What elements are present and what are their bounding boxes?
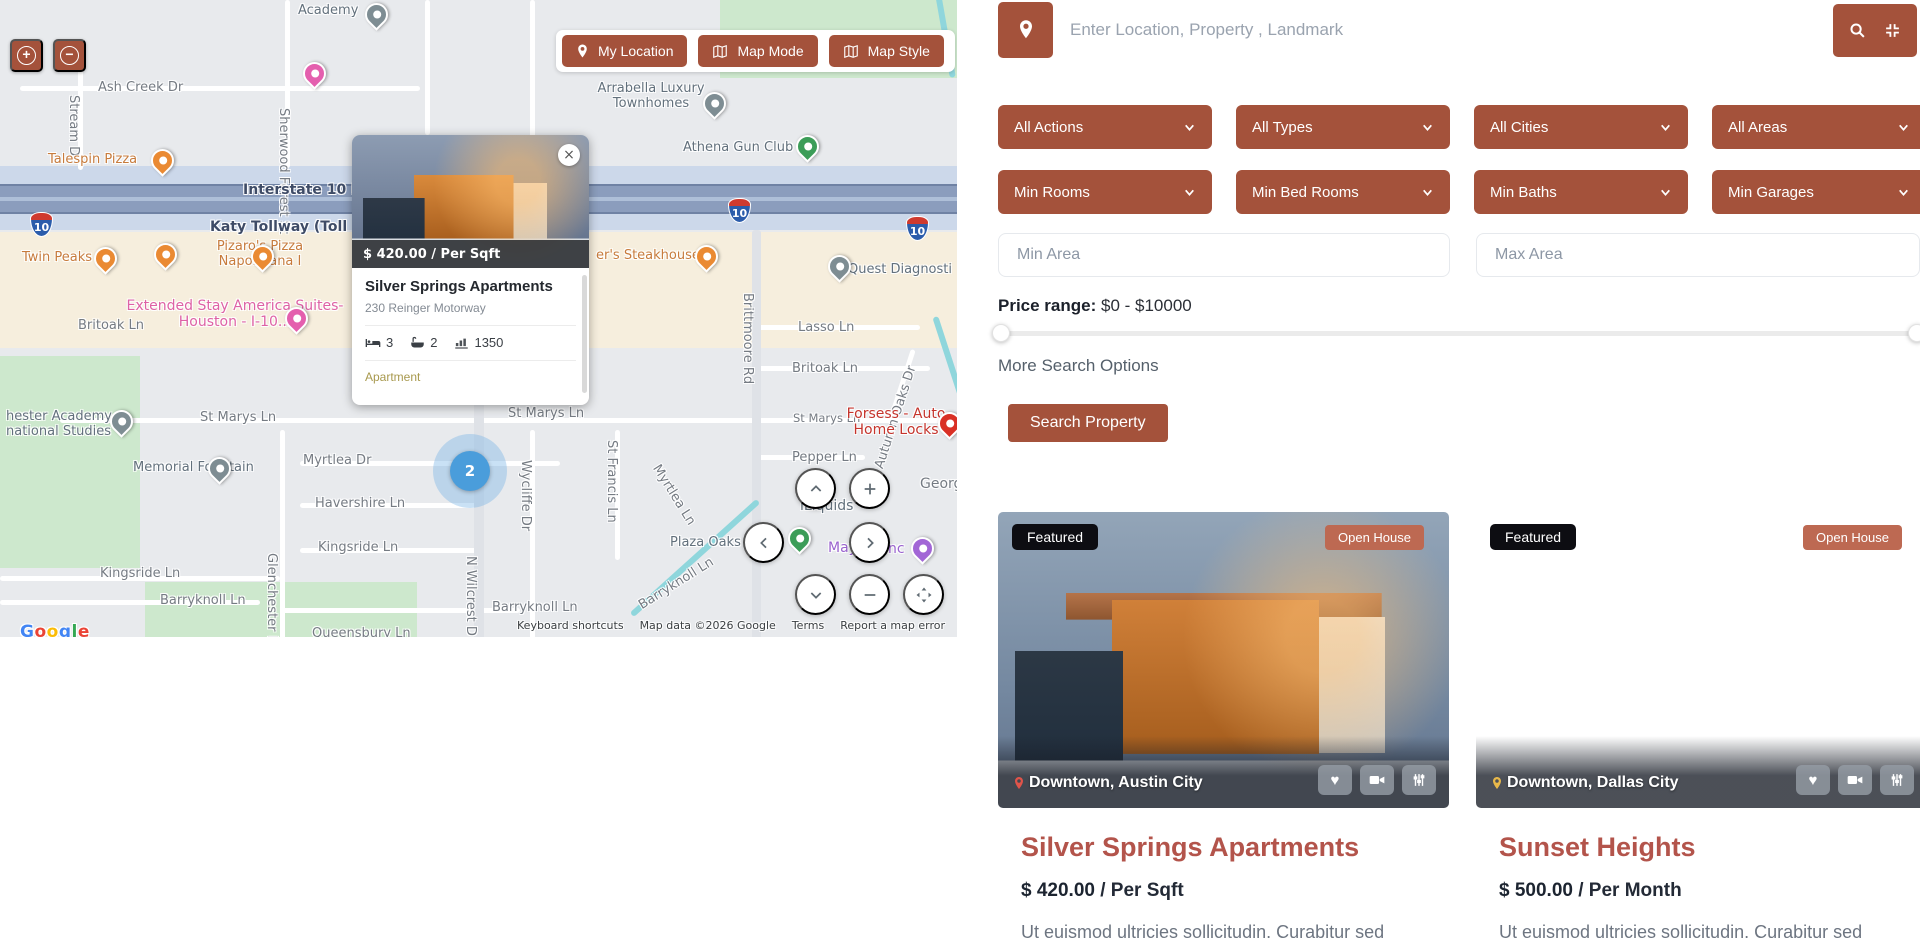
map-style-label: Map Style <box>868 43 930 59</box>
report-error-link[interactable]: Report a map error <box>840 619 945 632</box>
featured-badge: Featured <box>1012 524 1098 550</box>
popup-property-photo[interactable]: $ 420.00 / Per Sqft <box>352 135 589 268</box>
listing-description: Ut euismod ultricies sollicitudin. Curab… <box>1021 919 1426 946</box>
dropdown-label: All Actions <box>1014 119 1083 136</box>
search-actions-box <box>1833 4 1917 57</box>
chevron-down-icon <box>808 587 824 603</box>
map-road <box>752 230 761 637</box>
map-label: Twin Peaks <box>22 250 92 265</box>
map-label: Kingsride Ln <box>100 566 180 581</box>
area-feature: 1350 <box>454 335 503 350</box>
price-range-line: Price range: $0 - $10000 <box>998 296 1192 316</box>
dropdown-all-areas[interactable]: All Areas <box>1712 105 1920 149</box>
beds-feature: 3 <box>365 335 393 350</box>
chevron-down-icon <box>1183 186 1196 199</box>
listing-title[interactable]: Sunset Heights <box>1499 832 1920 863</box>
location-search-input[interactable] <box>1070 12 1710 48</box>
filters-button[interactable] <box>1880 765 1914 795</box>
slider-handle-min[interactable] <box>992 324 1010 342</box>
plus-icon <box>862 481 878 497</box>
map-label: Queensbury Ln <box>312 626 411 637</box>
chevron-down-icon <box>1897 121 1910 134</box>
map[interactable]: Academy Ash Creek Dr Stream Dr Sherwood … <box>0 0 957 637</box>
map-label: Myrtlea Dr <box>303 453 371 468</box>
open-house-badge: Open House <box>1803 525 1902 550</box>
map-marker-gun-club[interactable] <box>791 130 824 163</box>
popup-address: 230 Reinger Motorway <box>365 301 576 315</box>
listing-card: Featured Open House Downtown, Austin Cit… <box>998 512 1449 946</box>
logo-letter: o <box>34 622 46 637</box>
chevron-down-icon <box>1659 121 1672 134</box>
chevron-down-icon <box>1421 186 1434 199</box>
logo-letter: g <box>59 622 72 637</box>
dropdown-min-bed-rooms[interactable]: Min Bed Rooms <box>1236 170 1450 214</box>
location-pin-icon <box>1017 19 1035 41</box>
map-park-area <box>0 356 140 568</box>
cluster-marker[interactable]: 2 <box>450 451 490 491</box>
slider-handle-max[interactable] <box>1908 324 1920 342</box>
map-label: N Wilcrest D <box>463 556 478 636</box>
map-label: Pepper Ln <box>792 450 857 465</box>
map-zoom-in-button[interactable]: + <box>10 39 43 72</box>
map-label: Athena Gun Club <box>683 140 793 155</box>
dropdown-label: All Cities <box>1490 119 1548 136</box>
map-data-label: Map data ©2026 Google <box>640 619 776 632</box>
dropdown-label: Min Bed Rooms <box>1252 184 1359 201</box>
chevron-down-icon <box>1897 186 1910 199</box>
map-property-popup: $ 420.00 / Per Sqft × Silver Springs Apa… <box>352 135 589 405</box>
map-label: Havershire Ln <box>315 496 405 511</box>
popup-category[interactable]: Apartment <box>365 370 576 384</box>
listing-location: Downtown, Dallas City <box>1491 774 1679 792</box>
dropdown-min-garages[interactable]: Min Garages <box>1712 170 1920 214</box>
map-label: Talespin Pizza <box>48 152 137 167</box>
map-icon <box>843 44 859 59</box>
dropdown-all-types[interactable]: All Types <box>1236 105 1450 149</box>
compress-icon[interactable] <box>1884 22 1901 39</box>
map-label: Britoak Ln <box>792 361 858 376</box>
map-label: er's Steakhouse <box>596 248 700 263</box>
map-marker-fountain[interactable] <box>203 452 236 485</box>
video-button[interactable] <box>1360 765 1394 795</box>
map-road <box>280 608 520 613</box>
dropdown-label: All Types <box>1252 119 1313 136</box>
map-label: Interstate 10 Fr <box>243 182 367 198</box>
plus-icon: + <box>17 46 36 65</box>
listing-price: $ 420.00 / Per Sqft <box>1021 880 1449 902</box>
logo-letter: e <box>78 622 90 637</box>
search-property-button[interactable]: Search Property <box>1008 404 1168 442</box>
map-label: Britoak Ln <box>78 318 144 333</box>
listing-location: Downtown, Austin City <box>1013 774 1203 792</box>
price-range-slider[interactable] <box>998 331 1918 336</box>
zoom-in-circle-button[interactable] <box>849 468 890 509</box>
chevron-down-icon <box>1421 121 1434 134</box>
map-label: Extended Stay America Suites- Houston - … <box>125 298 345 330</box>
more-search-options-link[interactable]: More Search Options <box>998 356 1159 376</box>
pan-mode-button[interactable] <box>903 574 944 615</box>
map-road <box>425 0 430 135</box>
map-label: St Marys Ln <box>200 410 276 425</box>
bed-icon <box>365 337 381 349</box>
dropdown-min-baths[interactable]: Min Baths <box>1474 170 1688 214</box>
dropdown-all-cities[interactable]: All Cities <box>1474 105 1688 149</box>
video-button[interactable] <box>1838 765 1872 795</box>
map-label: Kingsride Ln <box>318 540 398 555</box>
price-range-value: $0 - $10000 <box>1101 296 1192 315</box>
min-area-input[interactable] <box>998 233 1450 277</box>
minus-icon: − <box>60 46 79 65</box>
map-label: Sherwood Forest St <box>276 108 291 234</box>
favorite-button[interactable]: ♥ <box>1796 765 1830 795</box>
map-label: Georg <box>920 476 957 492</box>
sliders-icon <box>1890 773 1904 787</box>
chevron-down-icon <box>1659 186 1672 199</box>
dropdown-label: Min Garages <box>1728 184 1814 201</box>
heart-icon: ♥ <box>1331 772 1340 789</box>
map-marker-academy[interactable] <box>360 0 393 31</box>
pan-down-button[interactable] <box>795 574 836 615</box>
chevron-up-icon <box>808 481 824 497</box>
chevron-right-icon <box>862 535 878 551</box>
popup-close-button[interactable]: × <box>558 144 580 166</box>
map-label: St Francis Ln <box>604 440 619 523</box>
area-chart-icon <box>454 337 469 349</box>
map-label: St Marys Ln <box>508 406 584 421</box>
price-range-label: Price range: <box>998 296 1096 315</box>
logo-letter: G <box>20 622 34 637</box>
terms-link[interactable]: Terms <box>792 619 824 632</box>
map-label: Quest Diagnosti <box>848 262 952 277</box>
minus-icon <box>862 587 878 603</box>
listing-title[interactable]: Silver Springs Apartments <box>1021 832 1449 863</box>
max-area-input[interactable] <box>1476 233 1920 277</box>
pan-right-button[interactable] <box>849 522 890 563</box>
listing-photo[interactable]: Featured Open House Downtown, Dallas Cit… <box>1476 512 1920 808</box>
filters-button[interactable] <box>1402 765 1436 795</box>
location-pin-box <box>998 2 1053 58</box>
map-mode-button[interactable]: Map Mode <box>698 35 817 67</box>
map-label: Arrabella Luxury Townhomes <box>592 82 710 112</box>
map-road <box>280 430 285 637</box>
heart-icon: ♥ <box>1809 772 1818 789</box>
map-label: nc <box>888 541 905 557</box>
map-marker-lodging[interactable] <box>298 57 331 90</box>
baths-feature: 2 <box>410 335 437 350</box>
dropdown-label: Min Baths <box>1490 184 1557 201</box>
my-location-button[interactable]: My Location <box>562 35 687 67</box>
map-label: Wycliffe Dr <box>518 460 533 531</box>
pan-left-button[interactable] <box>743 522 784 563</box>
real-estate-search-page: Academy Ash Creek Dr Stream Dr Sherwood … <box>0 0 1920 950</box>
logo-letter: o <box>47 622 59 637</box>
divider <box>365 325 576 326</box>
open-house-badge: Open House <box>1325 525 1424 550</box>
map-attribution: Keyboard shortcuts Map data ©2026 Google… <box>517 619 945 632</box>
keyboard-shortcuts-link[interactable]: Keyboard shortcuts <box>517 619 624 632</box>
dropdown-label: Min Rooms <box>1014 184 1090 201</box>
location-pin-icon <box>1491 776 1503 791</box>
listing-price: $ 500.00 / Per Month <box>1499 880 1920 902</box>
video-camera-icon <box>1847 774 1863 786</box>
map-marker-store[interactable] <box>906 532 939 565</box>
map-label: Brittmoore Rd <box>740 293 755 384</box>
listing-photo[interactable]: Featured Open House Downtown, Austin Cit… <box>998 512 1449 808</box>
map-label: Forsess - Auto Home Locks <box>842 406 950 438</box>
chevron-down-icon <box>1183 121 1196 134</box>
map-label: Barryknoll Ln <box>636 555 717 613</box>
featured-badge: Featured <box>1490 524 1576 550</box>
my-location-label: My Location <box>598 43 673 59</box>
zoom-out-circle-button[interactable] <box>849 574 890 615</box>
map-zoom-out-button[interactable]: − <box>53 39 86 72</box>
chevron-left-icon <box>756 535 772 551</box>
map-mode-label: Map Mode <box>737 43 803 59</box>
map-label: Barryknoll Ln <box>160 593 246 608</box>
popup-title[interactable]: Silver Springs Apartments <box>365 278 576 295</box>
map-controls-strip: My Location Map Mode Map Style <box>556 30 955 72</box>
map-label: Myrtlea Ln <box>649 462 698 528</box>
listing-description: Ut euismod ultricies sollicitudin. Curab… <box>1499 919 1904 946</box>
search-icon[interactable] <box>1849 22 1866 39</box>
four-arrows-icon <box>915 586 933 604</box>
location-pin-icon <box>1013 776 1025 791</box>
map-label: Barryknoll Ln <box>492 600 578 615</box>
map-label: Glenchester Dr <box>264 553 279 637</box>
google-logo[interactable]: Google <box>20 622 90 637</box>
map-label: Plaza Oaks <box>670 535 741 550</box>
map-label: Lasso Ln <box>798 320 854 335</box>
map-label: Ash Creek Dr <box>98 80 183 95</box>
dropdown-all-actions[interactable]: All Actions <box>998 105 1212 149</box>
map-label: Memorial Fountain <box>133 460 254 475</box>
video-camera-icon <box>1369 774 1385 786</box>
listing-card: Featured Open House Downtown, Dallas Cit… <box>1476 512 1920 946</box>
pan-up-button[interactable] <box>795 468 836 509</box>
popup-scrollbar[interactable] <box>582 275 587 393</box>
bath-icon <box>410 336 425 349</box>
map-style-button[interactable]: Map Style <box>829 35 944 67</box>
sliders-icon <box>1412 773 1426 787</box>
map-marker-poi-green[interactable] <box>783 522 816 555</box>
divider <box>365 360 576 361</box>
location-pin-icon <box>576 44 589 59</box>
dropdown-label: All Areas <box>1728 119 1787 136</box>
dropdown-min-rooms[interactable]: Min Rooms <box>998 170 1212 214</box>
favorite-button[interactable]: ♥ <box>1318 765 1352 795</box>
map-label: Academy <box>298 3 358 18</box>
popup-price: $ 420.00 / Per Sqft <box>352 240 589 268</box>
map-icon <box>712 44 728 59</box>
